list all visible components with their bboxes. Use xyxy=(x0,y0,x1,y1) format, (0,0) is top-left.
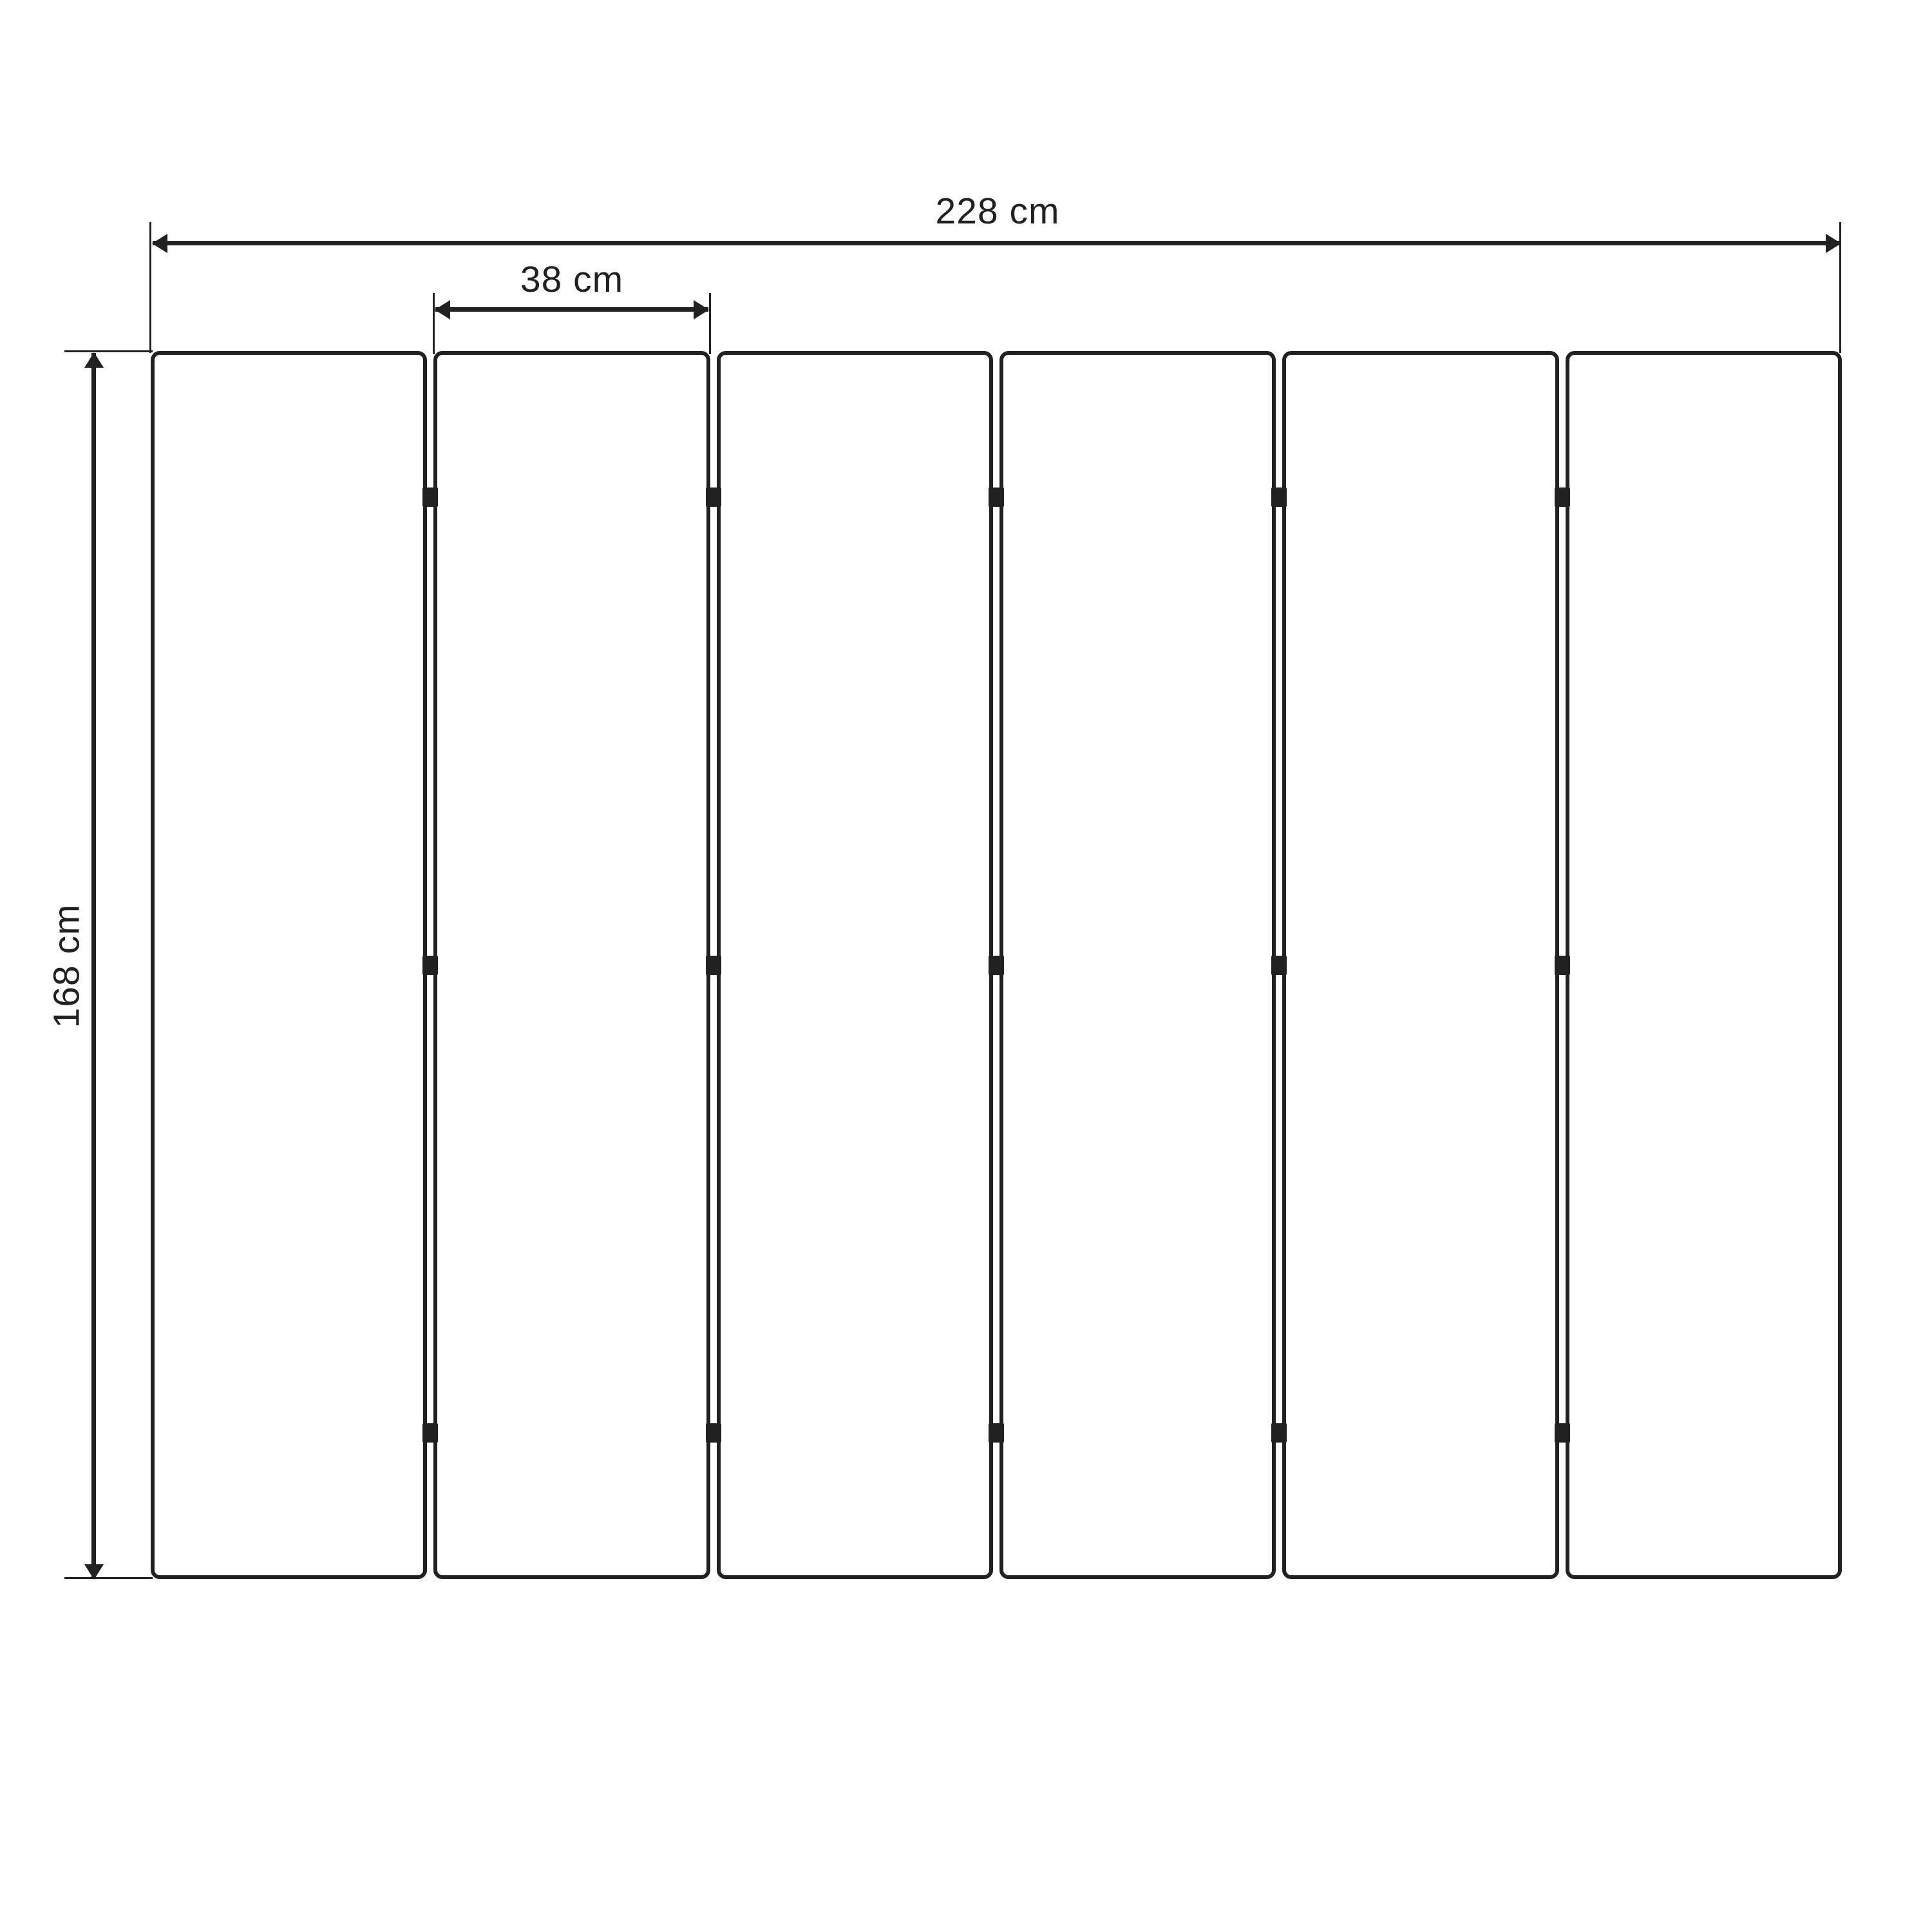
extension-line xyxy=(433,293,435,354)
hinge-joint5-row2 xyxy=(1555,956,1570,975)
height-dimension-line xyxy=(91,353,96,1579)
panel-4 xyxy=(999,351,1276,1579)
panel-5 xyxy=(1282,351,1558,1579)
arrowhead-up-icon xyxy=(84,352,104,368)
hinge-joint1-row3 xyxy=(422,1423,438,1443)
panel-2 xyxy=(433,351,710,1579)
panel-3 xyxy=(717,351,993,1579)
panel-dimension-diagram: 228 cm 38 cm 168 cm xyxy=(0,0,1932,1932)
hinge-joint1-row1 xyxy=(422,488,438,507)
arrowhead-right-icon xyxy=(694,300,709,319)
hinge-joint3-row3 xyxy=(989,1423,1004,1443)
hinge-joint5-row1 xyxy=(1555,488,1570,507)
panel-row xyxy=(151,351,1842,1579)
extension-line xyxy=(709,293,711,354)
extension-line xyxy=(149,222,151,353)
extension-line xyxy=(64,1577,153,1579)
total-width-label: 228 cm xyxy=(936,193,1060,230)
hinge-joint3-row1 xyxy=(989,488,1004,507)
panel-1 xyxy=(151,351,427,1579)
panel-width-label: 38 cm xyxy=(520,261,623,298)
total-width-dimension-line xyxy=(153,241,1841,245)
hinge-joint2-row2 xyxy=(706,956,721,975)
hinge-joint2-row1 xyxy=(706,488,721,507)
hinge-joint4-row2 xyxy=(1271,956,1287,975)
arrowhead-left-icon xyxy=(435,300,450,319)
panel-width-dimension-line xyxy=(435,307,708,312)
height-label: 168 cm xyxy=(49,904,86,1028)
hinge-joint2-row3 xyxy=(706,1423,721,1443)
hinge-joint3-row2 xyxy=(989,956,1004,975)
hinge-joint5-row3 xyxy=(1555,1423,1570,1443)
extension-line xyxy=(1839,222,1841,353)
arrowhead-left-icon xyxy=(152,234,167,253)
hinge-joint4-row3 xyxy=(1271,1423,1287,1443)
panel-6 xyxy=(1566,351,1842,1579)
hinge-joint1-row2 xyxy=(422,956,438,975)
hinge-joint4-row1 xyxy=(1271,488,1287,507)
extension-line xyxy=(64,350,153,352)
